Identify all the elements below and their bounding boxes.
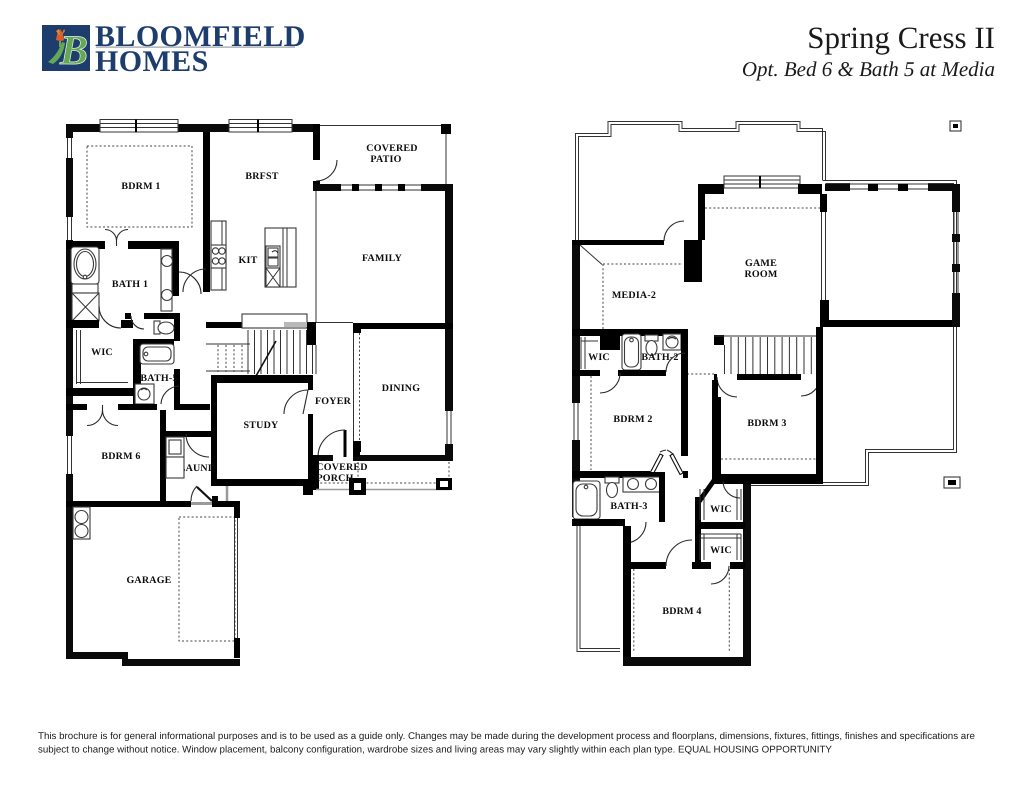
svg-text:COVERED: COVERED xyxy=(316,462,367,473)
svg-text:BDRM 4: BDRM 4 xyxy=(662,606,701,617)
svg-text:Spring Cress II: Spring Cress II xyxy=(807,20,995,55)
svg-text:B: B xyxy=(59,28,88,74)
svg-text:WIC: WIC xyxy=(710,504,732,515)
svg-text:COVERED: COVERED xyxy=(366,143,417,154)
svg-text:BATH-5: BATH-5 xyxy=(140,373,177,384)
svg-text:PATIO: PATIO xyxy=(370,154,401,165)
svg-text:WIC: WIC xyxy=(91,347,113,358)
svg-text:This brochure is for general i: This brochure is for general information… xyxy=(38,731,975,742)
svg-text:GARAGE: GARAGE xyxy=(126,575,171,586)
svg-text:BRFST: BRFST xyxy=(245,171,278,182)
svg-text:DINING: DINING xyxy=(382,383,420,394)
svg-text:BDRM 3: BDRM 3 xyxy=(747,418,786,429)
svg-text:PORCH: PORCH xyxy=(316,473,353,484)
svg-text:KIT: KIT xyxy=(239,255,258,266)
svg-text:GAME: GAME xyxy=(745,258,777,269)
svg-text:BATH 1: BATH 1 xyxy=(112,279,148,290)
svg-text:FAMILY: FAMILY xyxy=(362,253,403,264)
svg-text:STUDY: STUDY xyxy=(244,420,279,431)
svg-text:subject to change without noti: subject to change without notice. Window… xyxy=(38,745,832,756)
svg-text:BDRM 1: BDRM 1 xyxy=(121,181,160,192)
svg-text:ROOM: ROOM xyxy=(744,269,777,280)
svg-text:MEDIA-2: MEDIA-2 xyxy=(612,290,656,301)
svg-text:BDRM 2: BDRM 2 xyxy=(613,414,652,425)
svg-text:BATH-3: BATH-3 xyxy=(610,501,647,512)
svg-text:BDRM 6: BDRM 6 xyxy=(101,451,140,462)
svg-text:WIC: WIC xyxy=(710,545,732,556)
svg-text:HOMES: HOMES xyxy=(95,45,209,78)
svg-text:FOYER: FOYER xyxy=(315,396,352,407)
svg-text:WIC: WIC xyxy=(588,352,610,363)
svg-text:Opt. Bed 6 & Bath 5 at Media: Opt. Bed 6 & Bath 5 at Media xyxy=(742,57,995,81)
